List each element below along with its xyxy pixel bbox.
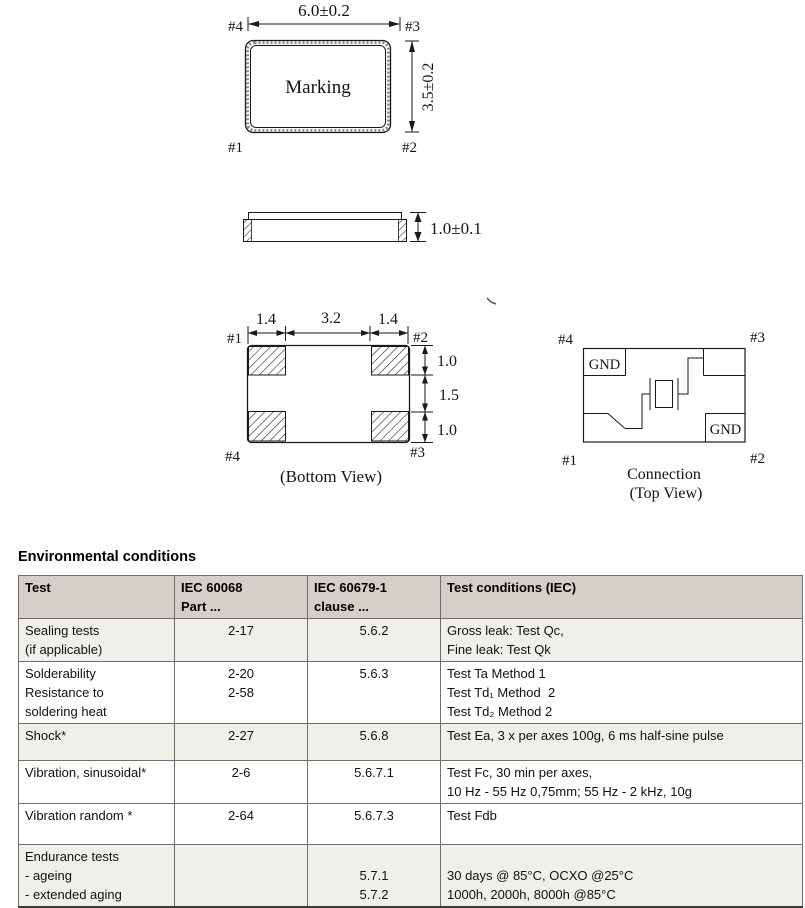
- bottom-view-caption: (Bottom View): [280, 467, 382, 486]
- side-view-body: [244, 220, 407, 242]
- top-view-height-dimension: 3.5±0.2: [420, 63, 437, 112]
- cell-part: 2-17: [175, 619, 308, 662]
- cell-clause: 5.6.7.3: [308, 804, 441, 845]
- connection-caption-line2: (Top View): [630, 485, 703, 502]
- cell-clause: 5.7.1 5.7.2: [308, 845, 441, 908]
- pad-top-left: [249, 347, 286, 376]
- bottom-view-pin2-label: #2: [413, 330, 428, 346]
- cell-part: 2-27: [175, 724, 308, 761]
- cell-part: 2-20 2-58: [175, 662, 308, 724]
- bottom-dim-1-0-bottom: 1.0: [437, 422, 457, 439]
- top-view-width-dimension: 6.0±0.2: [298, 1, 350, 20]
- table-row-sealing-tests: Sealing tests (if applicable) 2-17 5.6.2…: [19, 619, 803, 662]
- bottom-dim-3-2: 3.2: [321, 310, 341, 327]
- table-header-row: Test IEC 60068 Part ... IEC 60679-1 clau…: [19, 576, 803, 619]
- cell-conditions: Test Ea, 3 x per axes 100g, 6 ms half-si…: [441, 724, 803, 761]
- marking-label: Marking: [285, 77, 351, 98]
- connection-pin1-label: #1: [562, 453, 577, 469]
- gnd-label-top-left: GND: [589, 357, 620, 373]
- cell-conditions: Test Ta Method 1 Test Td₁ Method 2 Test …: [441, 662, 803, 724]
- top-view-pin2-label: #2: [402, 140, 417, 156]
- cell-conditions: Test Fc, 30 min per axes, 10 Hz - 55 Hz …: [441, 761, 803, 804]
- cell-conditions: Gross leak: Test Qc, Fine leak: Test Qk: [441, 619, 803, 662]
- side-view-height-dimension: 1.0±0.1: [430, 219, 482, 238]
- pad-top-right: [372, 347, 409, 376]
- connection-drawing: #4 #3 GND GND #1 #2 Connection (Top View…: [550, 318, 805, 508]
- cell-clause: 5.6.7.1: [308, 761, 441, 804]
- top-view-drawing: 6.0±0.2 #4 #3 Marking 3.5±0.2 #1 #2: [185, 0, 465, 165]
- bottom-dim-1-4-right: 1.4: [378, 311, 398, 328]
- cell-clause: 5.6.8: [308, 724, 441, 761]
- col-header-test: Test: [19, 576, 175, 619]
- top-view-pin1-label: #1: [228, 140, 243, 156]
- table-row-vibration-random: Vibration random * 2-64 5.6.7.3 Test Fdb: [19, 804, 803, 845]
- crystal-symbol: [656, 381, 673, 408]
- cell-part: [175, 845, 308, 908]
- table-row-vibration-sinusoidal: Vibration, sinusoidal* 2-6 5.6.7.1 Test …: [19, 761, 803, 804]
- cell-test: Solderability Resistance to soldering he…: [19, 662, 175, 724]
- cell-test: Sealing tests (if applicable): [19, 619, 175, 662]
- cell-test: Vibration, sinusoidal*: [19, 761, 175, 804]
- cell-conditions: Test Fdb: [441, 804, 803, 845]
- stray-mark: [485, 296, 501, 310]
- cell-test: Endurance tests - ageing - extended agin…: [19, 845, 175, 908]
- bottom-dim-1-5: 1.5: [439, 387, 459, 404]
- bottom-view-pin4-label: #4: [225, 449, 241, 465]
- cell-part: 2-6: [175, 761, 308, 804]
- bottom-dim-1-0-top: 1.0: [437, 353, 457, 370]
- cell-clause: 5.6.2: [308, 619, 441, 662]
- bottom-view-drawing: 1.4 3.2 1.4 #1 #2 1.0 1.5 1.0 #4 #3 (Bot…: [215, 300, 470, 495]
- top-view-pin3-label: #3: [405, 19, 420, 35]
- col-header-iec-60679-1: IEC 60679-1 clause ...: [308, 576, 441, 619]
- col-header-iec-60068: IEC 60068 Part ...: [175, 576, 308, 619]
- cell-part: 2-64: [175, 804, 308, 845]
- bottom-view-pin3-label: #3: [410, 445, 425, 461]
- connection-pin3-label: #3: [750, 330, 765, 346]
- table-row-solderability: Solderability Resistance to soldering he…: [19, 662, 803, 724]
- side-view-lid: [249, 213, 402, 220]
- table-row-endurance-tests: Endurance tests - ageing - extended agin…: [19, 845, 803, 908]
- pad-bottom-left: [249, 412, 286, 442]
- connection-pin2-label: #2: [750, 451, 765, 467]
- pad-bottom-right: [372, 412, 409, 442]
- cell-test: Shock*: [19, 724, 175, 761]
- section-title: Environmental conditions: [18, 549, 196, 565]
- cell-clause: 5.6.3: [308, 662, 441, 724]
- cell-test: Vibration random *: [19, 804, 175, 845]
- cell-conditions: 30 days @ 85°C, OCXO @25°C 1000h, 2000h,…: [441, 845, 803, 908]
- gnd-label-bottom-right: GND: [710, 422, 741, 438]
- connection-pin4-label: #4: [558, 332, 574, 348]
- environmental-conditions-table: Test IEC 60068 Part ... IEC 60679-1 clau…: [18, 575, 803, 908]
- table-row-shock: Shock* 2-27 5.6.8 Test Ea, 3 x per axes …: [19, 724, 803, 761]
- top-view-pin4-label: #4: [228, 19, 244, 35]
- side-view-drawing: 1.0±0.1: [240, 205, 505, 255]
- col-header-test-conditions: Test conditions (IEC): [441, 576, 803, 619]
- bottom-view-pin1-label: #1: [227, 331, 242, 347]
- bottom-dim-1-4-left: 1.4: [256, 311, 276, 328]
- connection-caption-line1: Connection: [627, 466, 701, 483]
